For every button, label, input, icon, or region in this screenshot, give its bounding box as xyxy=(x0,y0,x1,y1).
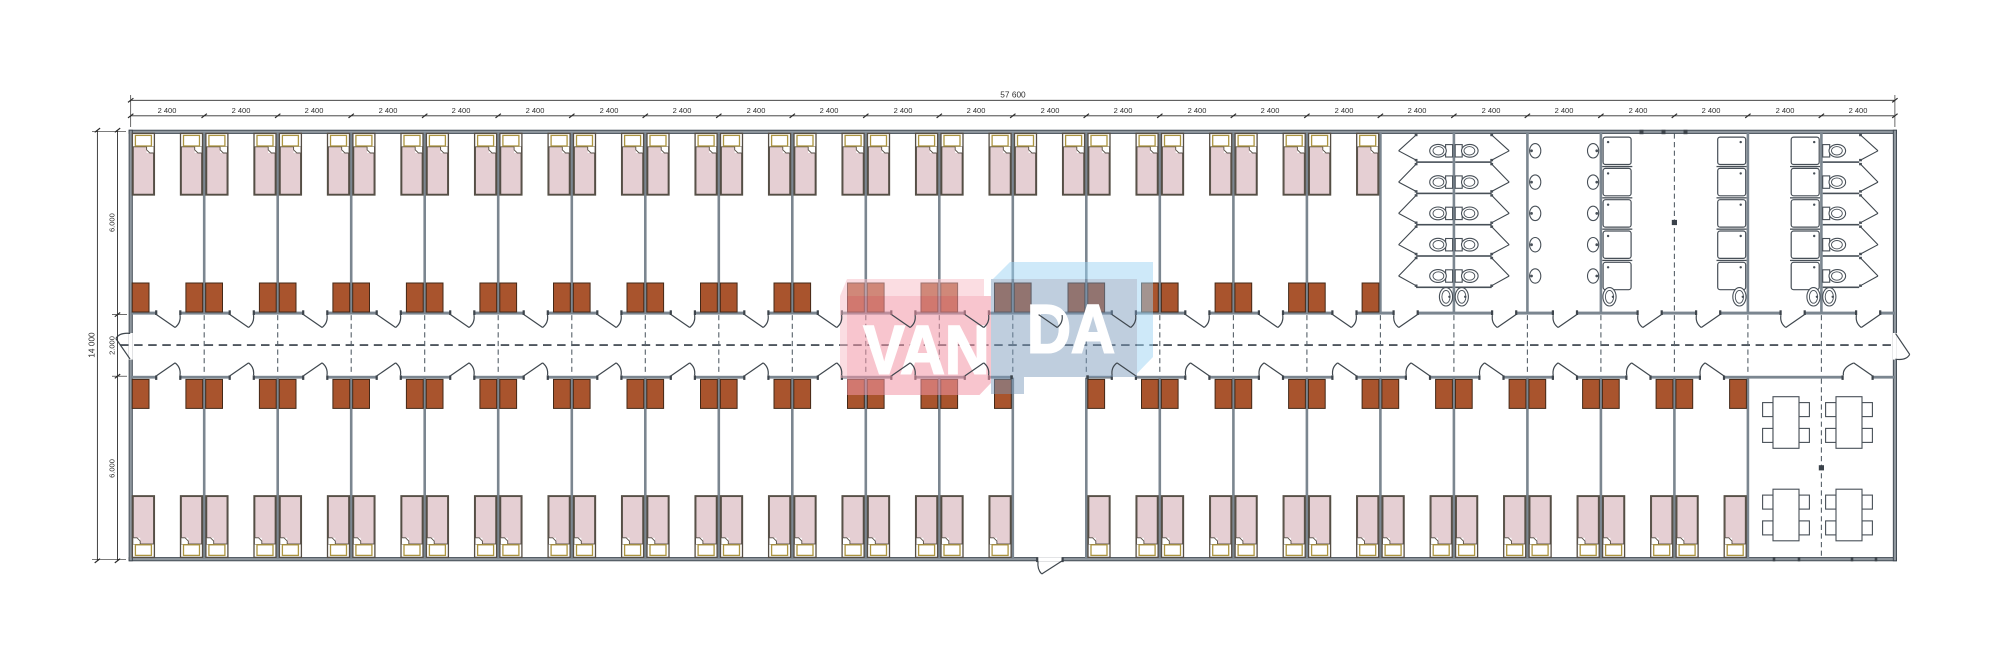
svg-text:14 000: 14 000 xyxy=(87,332,97,358)
svg-text:6.000: 6.000 xyxy=(108,213,117,232)
svg-text:2 400: 2 400 xyxy=(820,106,839,115)
svg-text:2 400: 2 400 xyxy=(158,106,177,115)
svg-text:VAN: VAN xyxy=(864,311,990,388)
svg-text:2 400: 2 400 xyxy=(1335,106,1354,115)
svg-text:2.000: 2.000 xyxy=(108,336,117,355)
svg-text:2 400: 2 400 xyxy=(232,106,251,115)
svg-text:2 400: 2 400 xyxy=(1261,106,1280,115)
svg-text:2 400: 2 400 xyxy=(1849,106,1868,115)
svg-text:2 400: 2 400 xyxy=(1188,106,1207,115)
svg-text:2 400: 2 400 xyxy=(1408,106,1427,115)
svg-text:57 600: 57 600 xyxy=(1000,90,1026,100)
svg-text:2 400: 2 400 xyxy=(1629,106,1648,115)
svg-text:2 400: 2 400 xyxy=(894,106,913,115)
svg-text:2 400: 2 400 xyxy=(1041,106,1060,115)
svg-text:2 400: 2 400 xyxy=(747,106,766,115)
svg-text:2 400: 2 400 xyxy=(452,106,471,115)
svg-text:2 400: 2 400 xyxy=(967,106,986,115)
svg-text:2 400: 2 400 xyxy=(1776,106,1795,115)
svg-text:2 400: 2 400 xyxy=(305,106,324,115)
svg-text:2 400: 2 400 xyxy=(379,106,398,115)
svg-text:2 400: 2 400 xyxy=(1114,106,1133,115)
svg-text:DA: DA xyxy=(1027,291,1115,368)
svg-text:2 400: 2 400 xyxy=(600,106,619,115)
svg-text:2 400: 2 400 xyxy=(1702,106,1721,115)
svg-text:2 400: 2 400 xyxy=(673,106,692,115)
svg-text:2 400: 2 400 xyxy=(1482,106,1501,115)
svg-text:2 400: 2 400 xyxy=(526,106,545,115)
svg-text:6.000: 6.000 xyxy=(108,459,117,478)
svg-text:2 400: 2 400 xyxy=(1555,106,1574,115)
